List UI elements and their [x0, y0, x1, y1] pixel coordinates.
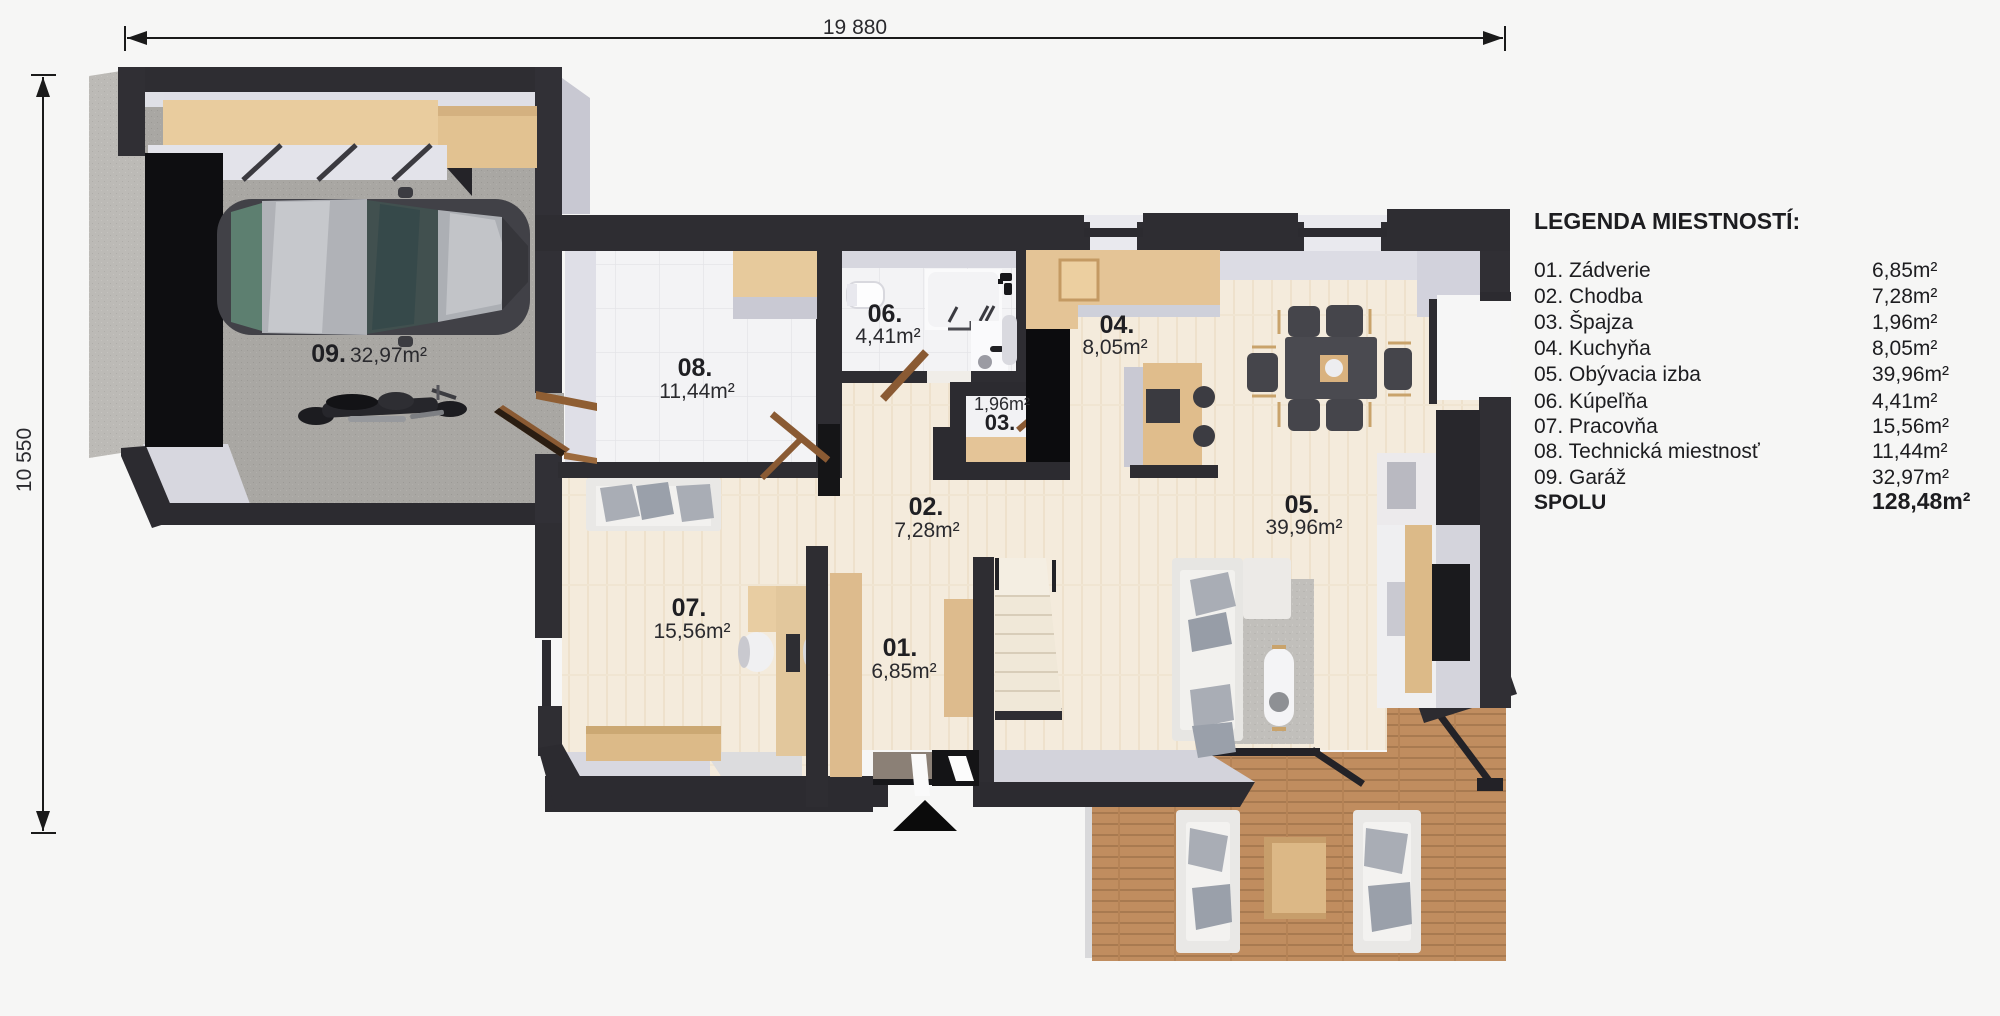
svg-text:4,41m²: 4,41m²	[1872, 390, 1937, 413]
svg-text:39,96m²: 39,96m²	[1265, 516, 1342, 539]
svg-text:03.: 03.	[985, 410, 1016, 435]
svg-text:01. Zádverie: 01. Zádverie	[1534, 259, 1651, 282]
svg-text:6,85m²: 6,85m²	[871, 660, 936, 683]
svg-text:03. Špajza: 03. Špajza	[1534, 311, 1634, 334]
svg-text:11,44m²: 11,44m²	[659, 380, 734, 403]
svg-text:10 550: 10 550	[13, 428, 36, 492]
svg-text:7,28m²: 7,28m²	[1872, 285, 1937, 308]
svg-text:7,28m²: 7,28m²	[894, 519, 959, 542]
svg-text:15,56m²: 15,56m²	[653, 620, 730, 643]
svg-text:09. Garáž: 09. Garáž	[1534, 466, 1626, 489]
svg-text:08.: 08.	[678, 354, 713, 382]
svg-text:05.: 05.	[1285, 491, 1320, 519]
svg-text:6,85m²: 6,85m²	[1872, 259, 1937, 282]
svg-text:15,56m²: 15,56m²	[1872, 415, 1949, 438]
svg-text:128,48m²: 128,48m²	[1872, 488, 1971, 514]
svg-text:LEGENDA MIESTNOSTÍ:: LEGENDA MIESTNOSTÍ:	[1534, 207, 1800, 234]
svg-text:05. Obývacia izba: 05. Obývacia izba	[1534, 363, 1701, 386]
svg-text:06.: 06.	[868, 300, 903, 328]
svg-text:SPOLU: SPOLU	[1534, 491, 1606, 514]
svg-text:06. Kúpeľňa: 06. Kúpeľňa	[1534, 390, 1648, 413]
svg-text:02. Chodba: 02. Chodba	[1534, 285, 1643, 308]
svg-text:07. Pracovňa: 07. Pracovňa	[1534, 415, 1658, 438]
svg-text:09.: 09.	[311, 340, 346, 368]
svg-text:8,05m²: 8,05m²	[1872, 337, 1937, 360]
svg-text:04. Kuchyňa: 04. Kuchyňa	[1534, 337, 1651, 360]
svg-text:1,96m²: 1,96m²	[1872, 311, 1937, 334]
svg-text:19 880: 19 880	[823, 16, 887, 39]
svg-text:07.: 07.	[672, 594, 707, 622]
svg-text:32,97m²: 32,97m²	[350, 344, 427, 367]
svg-text:01.: 01.	[883, 634, 918, 662]
svg-text:08. Technická miestnosť: 08. Technická miestnosť	[1534, 440, 1761, 463]
svg-text:04.: 04.	[1100, 311, 1135, 339]
svg-text:02.: 02.	[909, 493, 944, 521]
svg-text:8,05m²: 8,05m²	[1082, 336, 1147, 359]
svg-text:32,97m²: 32,97m²	[1872, 466, 1949, 489]
svg-text:11,44m²: 11,44m²	[1872, 440, 1947, 463]
svg-text:4,41m²: 4,41m²	[855, 325, 920, 348]
svg-text:39,96m²: 39,96m²	[1872, 363, 1949, 386]
